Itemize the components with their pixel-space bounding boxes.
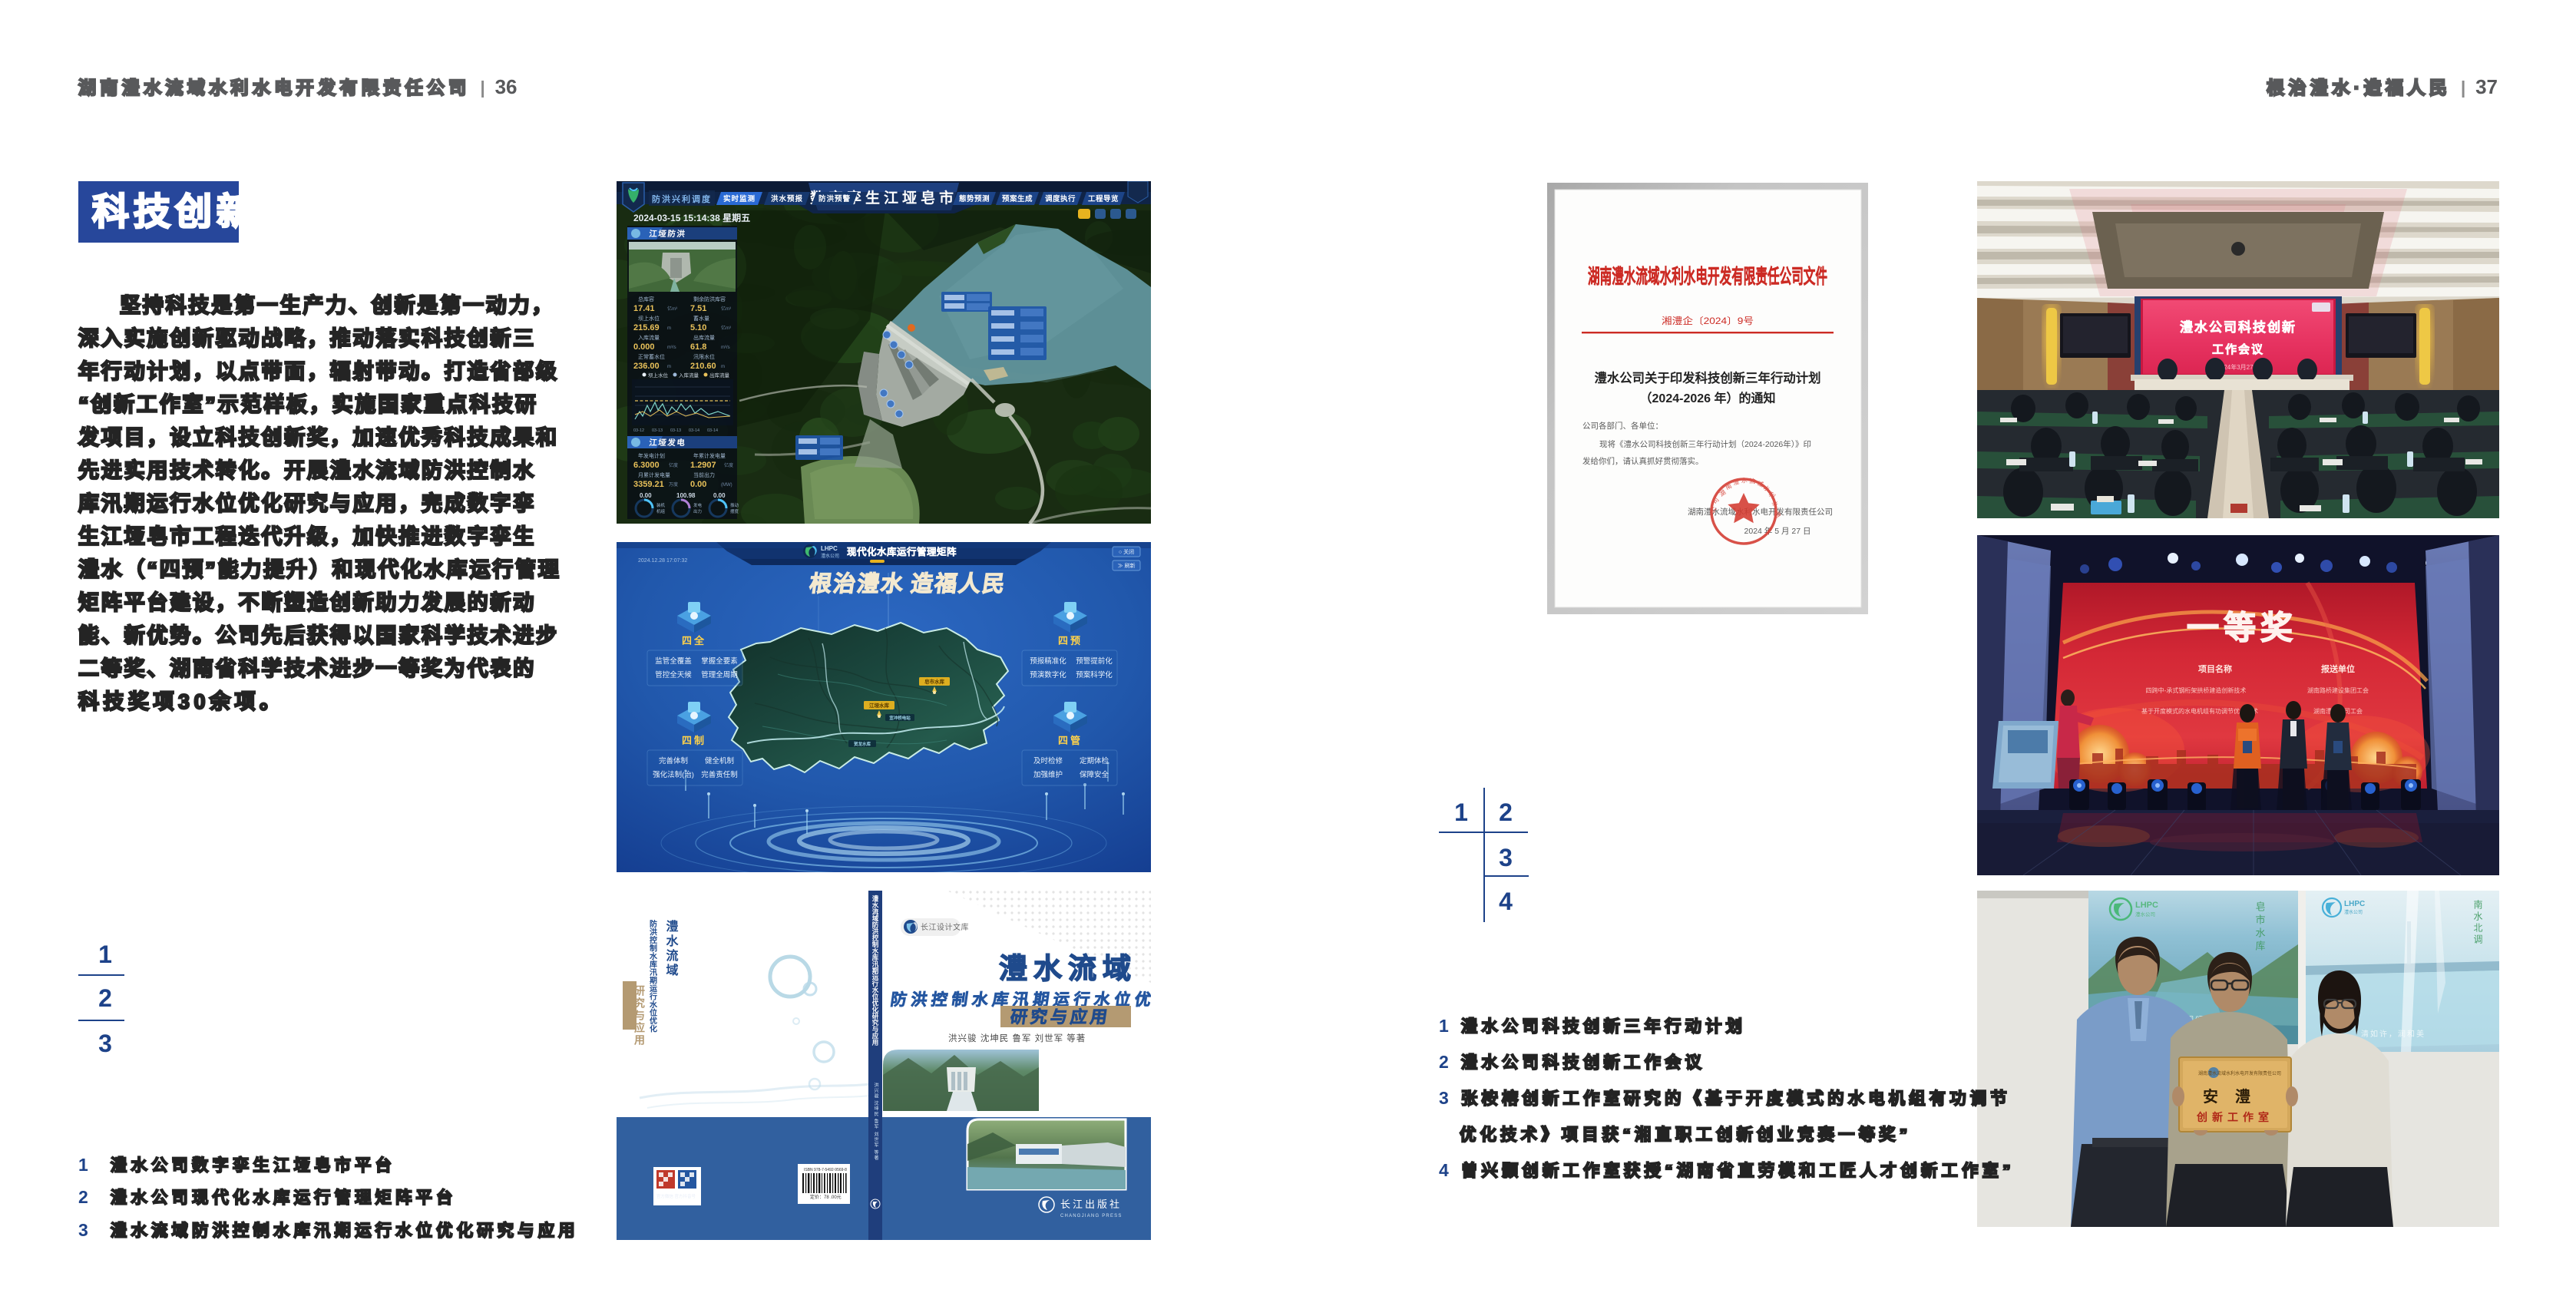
svg-text:项目名称: 项目名称 (2198, 663, 2232, 674)
svg-text:剩余防洪库容: 剩余防洪库容 (693, 296, 726, 303)
svg-text:m: m (721, 365, 725, 369)
svg-text:四制: 四制 (682, 735, 706, 746)
svg-text:61.8: 61.8 (690, 342, 706, 352)
svg-text:宜冲桥电站: 宜冲桥电站 (889, 715, 911, 721)
svg-text:m: m (667, 326, 671, 331)
svg-text:亿度: 亿度 (724, 462, 733, 468)
svg-text:发电: 发电 (693, 502, 703, 508)
svg-text:摆度: 摆度 (730, 508, 739, 514)
svg-text:防洪预警: 防洪预警 (818, 194, 851, 203)
svg-text:研究与应用: 研究与应用 (1009, 1007, 1111, 1027)
svg-text:2024-03-15 15:14:38 星期五: 2024-03-15 15:14:38 星期五 (633, 212, 750, 223)
svg-text:月累计发电量: 月累计发电量 (638, 471, 670, 478)
svg-text:澧水公司科技创新: 澧水公司科技创新 (2180, 319, 2297, 335)
svg-text:定期体检: 定期体检 (1080, 756, 1109, 765)
svg-text:亿度: 亿度 (669, 462, 678, 468)
svg-text:3359.21: 3359.21 (633, 480, 664, 489)
svg-text:0.00: 0.00 (713, 492, 726, 499)
svg-text:澧水流域: 澧水流域 (999, 953, 1137, 984)
svg-text:调度执行: 调度执行 (1045, 194, 1076, 203)
svg-text:03-13: 03-13 (652, 428, 663, 433)
svg-text:澧水公司: 澧水公司 (2344, 909, 2363, 915)
svg-text:报送单位: 报送单位 (2321, 663, 2355, 674)
svg-text:出库流量: 出库流量 (709, 372, 730, 379)
svg-text:四管: 四管 (1058, 735, 1083, 746)
svg-text:装机: 装机 (656, 502, 666, 508)
svg-text:安澧: 安澧 (2203, 1087, 2267, 1106)
svg-text:现代化水库运行管理矩阵: 现代化水库运行管理矩阵 (847, 546, 957, 557)
svg-text:蓄水量: 蓄水量 (693, 315, 709, 322)
svg-text:管理全周期: 管理全周期 (701, 670, 738, 679)
svg-text:湖南路桥建设集团工会: 湖南路桥建设集团工会 (2307, 686, 2369, 694)
svg-text:完善体制: 完善体制 (659, 756, 688, 765)
svg-text:澧水流域防洪控制水库汛期运行水位优化研究与应用: 澧水流域防洪控制水库汛期运行水位优化研究与应用 (871, 894, 879, 1046)
svg-text:及时检修: 及时检修 (1033, 756, 1063, 765)
svg-text:入库流量: 入库流量 (679, 372, 699, 379)
svg-text:澧水公司关于印发科技创新三年行动计划: 澧水公司关于印发科技创新三年行动计划 (1595, 370, 1821, 385)
svg-text:CHANGJIANG PRESS: CHANGJIANG PRESS (1060, 1214, 1123, 1218)
svg-text:5.10: 5.10 (690, 323, 706, 332)
svg-text:四跨中-承式钢桁架拱桥建造创新技术: 四跨中-承式钢桁架拱桥建造创新技术 (2146, 686, 2247, 694)
svg-text:流: 流 (1749, 477, 1756, 485)
svg-text:100.98: 100.98 (676, 492, 696, 499)
svg-text:强化法制(治): 强化法制(治) (653, 770, 694, 779)
svg-text:机组: 机组 (656, 508, 666, 514)
svg-text:17.41: 17.41 (633, 304, 655, 313)
svg-text:总库容: 总库容 (638, 296, 654, 303)
svg-text:m³/s: m³/s (667, 346, 676, 350)
svg-text:LHPC: LHPC (2135, 901, 2158, 910)
svg-text:年累计发电量: 年累计发电量 (693, 452, 726, 459)
svg-text:工程导览: 工程导览 (1088, 194, 1119, 203)
svg-text:○ 关闭: ○ 关闭 (1119, 548, 1134, 555)
svg-text:出力: 出力 (693, 508, 702, 514)
svg-text:態势预测: 態势预测 (959, 194, 990, 203)
svg-text:210.60: 210.60 (690, 362, 716, 371)
svg-text:03-13: 03-13 (670, 428, 681, 433)
svg-text:振动: 振动 (730, 502, 739, 508)
svg-text:防洪兴利调度: 防洪兴利调度 (652, 193, 712, 204)
svg-text:亿m³: 亿m³ (721, 325, 731, 331)
svg-text:皂市水库: 皂市水库 (2254, 901, 2266, 954)
svg-text:（2024-2026 年）的通知: （2024-2026 年）的通知 (1640, 391, 1776, 405)
svg-text:坝上水位: 坝上水位 (638, 315, 660, 322)
svg-text:定价：78 .00元: 定价：78 .00元 (810, 1194, 842, 1200)
svg-text:0.000: 0.000 (633, 342, 655, 352)
svg-text:正常蓄水位: 正常蓄水位 (638, 353, 665, 360)
svg-text:LHPC: LHPC (821, 545, 838, 552)
svg-text:创新工作室: 创新工作室 (2196, 1111, 2273, 1123)
svg-text:m³/s: m³/s (721, 346, 730, 350)
svg-text:洪兴骏 沈坤民 鲁军 刘世军 等著: 洪兴骏 沈坤民 鲁军 刘世军 等著 (948, 1033, 1086, 1043)
svg-text:澧水公司: 澧水公司 (821, 553, 839, 559)
svg-text:出库流量: 出库流量 (693, 334, 715, 341)
svg-text:皂市水库: 皂市水库 (924, 678, 945, 685)
svg-text:LHPC: LHPC (2344, 900, 2365, 908)
svg-text:03-12: 03-12 (633, 428, 644, 433)
svg-text:坝上水位: 坝上水位 (648, 372, 669, 379)
svg-text:加强维护: 加强维护 (1033, 770, 1063, 779)
svg-text:澧水流域: 澧水流域 (664, 919, 679, 978)
svg-text:预案科学化: 预案科学化 (1076, 670, 1113, 679)
svg-text:湖南澧水流域水利水电开发有限责任公司: 湖南澧水流域水利水电开发有限责任公司 (2198, 1070, 2281, 1076)
svg-text:6.3000: 6.3000 (633, 461, 660, 470)
svg-text:亿m³: 亿m³ (667, 306, 677, 312)
svg-text:江垭防洪: 江垭防洪 (649, 229, 686, 239)
svg-text:2024.12.28 17:07:32: 2024.12.28 17:07:32 (638, 558, 687, 564)
svg-text:年发电计划: 年发电计划 (638, 452, 665, 459)
svg-text:四全: 四全 (682, 635, 706, 646)
svg-text:工作会议: 工作会议 (2212, 342, 2264, 356)
svg-text:完善责任制: 完善责任制 (701, 770, 738, 779)
svg-text:万度: 万度 (669, 481, 678, 488)
svg-text:2024 年 5 月 27 日: 2024 年 5 月 27 日 (1744, 526, 1811, 536)
svg-text:洪兴骏 沈坤民 鲁军 刘世军 等著: 洪兴骏 沈坤民 鲁军 刘世军 等著 (873, 1082, 878, 1161)
svg-text:(MW): (MW) (721, 483, 732, 488)
svg-text:1.2907: 1.2907 (690, 461, 716, 470)
svg-text:湘澧企〔2024〕9号: 湘澧企〔2024〕9号 (1662, 315, 1754, 326)
svg-text:贺龙水库: 贺龙水库 (853, 741, 871, 747)
svg-text:ISBN 978-7-5492-9569-8: ISBN 978-7-5492-9569-8 (804, 1168, 847, 1172)
svg-text:健全机制: 健全机制 (705, 756, 734, 765)
svg-text:研究与应用: 研究与应用 (633, 985, 646, 1046)
svg-text:根治澧水: 根治澧水 (808, 571, 907, 597)
svg-text:236.00: 236.00 (633, 362, 660, 371)
svg-text:215.69: 215.69 (633, 323, 660, 332)
svg-text:现将《澧水公司科技创新三年行动计划（2024-2026年）》: 现将《澧水公司科技创新三年行动计划（2024-2026年）》印 (1599, 439, 1811, 449)
svg-text:洪水预报: 洪水预报 (771, 194, 803, 203)
svg-text:预演数字化: 预演数字化 (1030, 670, 1066, 679)
svg-text:掌握全要素: 掌握全要素 (701, 656, 738, 666)
svg-text:预报精准化: 预报精准化 (1030, 656, 1066, 666)
svg-text:清如许，润和美: 清如许，润和美 (2361, 1029, 2426, 1039)
svg-text:长江出版社: 长江出版社 (1060, 1199, 1122, 1210)
svg-text:实时监测: 实时监测 (723, 194, 756, 203)
svg-text:湖南澧水流域水利水电开发有限责任公司文件: 湖南澧水流域水利水电开发有限责任公司文件 (1588, 265, 1827, 288)
svg-text:官方微信 官方抖音号: 官方微信 官方抖音号 (656, 1193, 696, 1199)
svg-text:汛限水位: 汛限水位 (693, 353, 715, 360)
svg-text:长江设计文库: 长江设计文库 (921, 922, 969, 932)
svg-text:0.00: 0.00 (690, 480, 706, 489)
svg-text:管控全天候: 管控全天候 (655, 670, 692, 679)
svg-text:预案生成: 预案生成 (1002, 194, 1033, 203)
svg-text:≫ 刷新: ≫ 刷新 (1118, 562, 1136, 569)
svg-text:江垭水库: 江垭水库 (869, 702, 890, 709)
svg-text:一等奖: 一等奖 (2187, 610, 2297, 646)
svg-text:南水北调: 南水北调 (2472, 899, 2483, 946)
svg-text:入库流量: 入库流量 (638, 334, 660, 341)
svg-text:预警提前化: 预警提前化 (1076, 656, 1113, 666)
svg-text:03-14: 03-14 (689, 428, 699, 433)
svg-text:03-14: 03-14 (707, 428, 718, 433)
svg-text:亿m³: 亿m³ (721, 306, 731, 312)
svg-text:江垭发电: 江垭发电 (649, 438, 686, 448)
svg-text:当前出力: 当前出力 (693, 471, 715, 478)
svg-text:澧水公司: 澧水公司 (2135, 911, 2155, 918)
svg-text:监管全覆盖: 监管全覆盖 (655, 656, 692, 666)
svg-text:m: m (667, 365, 671, 369)
svg-text:0.00: 0.00 (640, 492, 652, 499)
svg-text:水: 水 (1741, 476, 1748, 484)
svg-text:造福人民: 造福人民 (909, 571, 1008, 597)
svg-text:发给你们，请认真抓好贯彻落实。: 发给你们，请认真抓好贯彻落实。 (1582, 456, 1704, 466)
svg-text:保障安全: 保障安全 (1080, 770, 1109, 779)
svg-text:四预: 四预 (1058, 635, 1083, 646)
svg-text:公司各部门、各单位：: 公司各部门、各单位： (1582, 421, 1663, 431)
svg-text:7.51: 7.51 (690, 304, 706, 313)
